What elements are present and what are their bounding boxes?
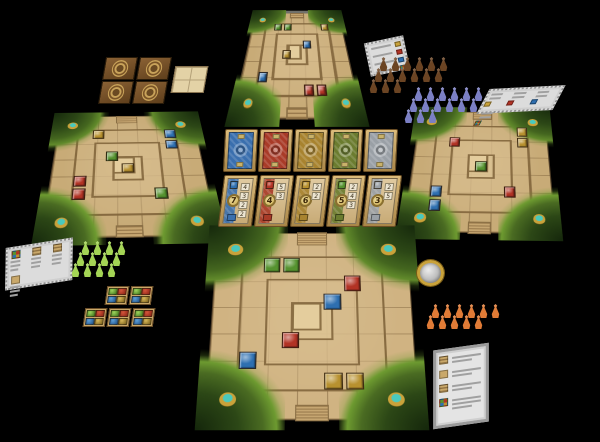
gem-tile-blue[interactable]	[429, 186, 442, 197]
gem-tile-red[interactable]	[73, 176, 87, 187]
temple-emblem-tile[interactable]	[98, 81, 134, 104]
gem-tile-green[interactable]	[274, 24, 282, 31]
red-gem-icon	[95, 310, 105, 317]
red-gem-icon	[117, 288, 127, 295]
temple-emblem-icon	[373, 141, 389, 159]
gem-quad-tile[interactable]	[129, 286, 154, 305]
aid-column	[8, 274, 22, 300]
tabletop-scene: 743224536225243325	[0, 0, 600, 442]
gold-coin[interactable]	[417, 260, 444, 286]
teal-altar-icon	[380, 244, 396, 256]
tile-icon	[11, 275, 20, 285]
player-aid-card[interactable]	[433, 343, 488, 430]
board-face	[204, 233, 419, 420]
meeple-brown[interactable]	[390, 57, 401, 71]
value-card-tray: 5243	[326, 175, 366, 227]
meeple-group-purple[interactable]	[413, 87, 493, 127]
meeple-purple[interactable]	[413, 87, 424, 101]
temple-emblem-icon	[233, 141, 249, 159]
gem-tile-blue[interactable]	[324, 294, 341, 309]
temple-card-tray	[293, 129, 328, 172]
jungle-foliage	[224, 68, 283, 126]
temple-card-tray	[363, 129, 398, 172]
card-chip	[377, 134, 384, 139]
value-card-tray: 453	[254, 175, 294, 227]
meeple-purple[interactable]	[461, 87, 472, 101]
value-steps: 22	[311, 183, 322, 200]
gem-tile-red[interactable]	[504, 187, 516, 198]
stairway	[287, 107, 308, 120]
blue-gem-icon	[529, 99, 538, 104]
stairway	[467, 222, 491, 234]
step-value: 2	[384, 183, 394, 191]
step-value: 3	[275, 192, 285, 200]
red-gem-icon	[143, 310, 153, 317]
temple-card-tray	[328, 129, 363, 172]
tile-stack-icon	[439, 355, 448, 364]
card-chip	[307, 134, 314, 139]
meeple-orange[interactable]	[442, 304, 453, 318]
gem-tile-gold[interactable]	[282, 50, 291, 59]
card-chip	[376, 162, 383, 167]
player-board-top[interactable]	[231, 13, 363, 120]
gold-gem-icon	[140, 296, 150, 303]
board-face	[402, 111, 556, 234]
emblem-icon	[145, 60, 164, 77]
value-card-blue[interactable]: 74322	[222, 178, 254, 224]
step-value: 2	[237, 210, 247, 218]
aid-row	[439, 379, 483, 395]
value-steps: 25	[383, 183, 394, 200]
meeple-green[interactable]	[116, 241, 127, 255]
step-value: 2	[348, 183, 358, 191]
pyramid-apex	[292, 303, 322, 331]
teal-altar-icon	[387, 393, 405, 407]
tile-stack-icon	[32, 246, 41, 256]
gem-tile-green[interactable]	[284, 258, 301, 273]
value-steps: 53	[275, 183, 286, 200]
card-chip	[272, 134, 279, 139]
player-board-bottom[interactable]	[204, 233, 419, 420]
value-steps: 243	[346, 183, 358, 209]
card-chip	[341, 162, 348, 167]
gold-gem-icon	[142, 318, 152, 325]
meeple-green[interactable]	[92, 241, 103, 255]
temple-emblem-icon	[338, 141, 354, 159]
temple-mini-icon	[299, 214, 309, 221]
temple-mini-icon	[263, 214, 273, 221]
gem-icon-gold	[301, 181, 310, 189]
gem-tile-blue[interactable]	[428, 199, 442, 211]
step-value: 2	[311, 192, 321, 200]
gold-gem-icon	[116, 296, 126, 303]
meeple-orange[interactable]	[490, 304, 501, 318]
gem-tile-red[interactable]	[449, 138, 461, 147]
step-value: 3	[346, 201, 356, 209]
gem-tile-blue[interactable]	[165, 140, 178, 149]
gem-tile-blue[interactable]	[239, 352, 257, 369]
gem-icon-silver	[373, 181, 382, 189]
step-value: 5	[276, 183, 286, 191]
meeple-orange[interactable]	[466, 304, 477, 318]
teal-altar-icon	[533, 214, 546, 224]
temple-card-silver[interactable]	[367, 132, 394, 169]
gem-tile-green[interactable]	[263, 258, 280, 273]
temple-card-tray	[223, 129, 258, 172]
aid-column	[8, 248, 22, 274]
gold-gem-icon	[94, 318, 104, 325]
gem-tile-blue[interactable]	[303, 41, 312, 49]
aid-column	[50, 242, 64, 268]
step-value: 2	[238, 201, 248, 209]
gem-tile-red[interactable]	[316, 85, 327, 96]
temple-card-blue[interactable]	[227, 132, 254, 169]
gem-tile-red[interactable]	[71, 189, 86, 201]
teal-altar-icon	[527, 119, 538, 126]
value-card-green[interactable]: 5243	[330, 178, 362, 224]
value-card-tray: 622	[290, 175, 330, 227]
meeple-brown[interactable]	[378, 57, 389, 71]
gem-tile-red[interactable]	[304, 85, 315, 96]
card-chip	[271, 162, 278, 167]
value-card-red[interactable]: 453	[258, 178, 290, 224]
card-chip	[237, 134, 244, 139]
value-card-gold[interactable]: 622	[294, 178, 326, 224]
gem-quad-tile[interactable]	[107, 308, 132, 327]
meeple-green[interactable]	[104, 241, 115, 255]
meeple-orange[interactable]	[430, 304, 441, 318]
meeple-group-orange[interactable]	[430, 304, 510, 344]
player-board-right[interactable]	[402, 111, 556, 234]
emblem-icon	[141, 84, 160, 101]
player-board-left[interactable]	[40, 115, 218, 239]
stairway	[116, 225, 144, 238]
gem-tile-blue[interactable]	[257, 72, 268, 82]
jungle-foliage	[311, 68, 370, 126]
aid-text	[450, 379, 483, 394]
tile-icon	[439, 370, 448, 379]
meeple-group-green[interactable]	[80, 241, 160, 281]
quad-gems-icon	[439, 398, 448, 407]
temple-emblem-tile[interactable]	[132, 81, 168, 104]
aid-text	[450, 393, 483, 412]
meeple-purple[interactable]	[473, 87, 484, 101]
value-card-row: 743224536225243325	[218, 175, 402, 227]
gem-quad-tile[interactable]	[131, 308, 156, 327]
temple-card-gold[interactable]	[297, 132, 324, 169]
gem-icon-green	[337, 181, 346, 189]
meeple-purple[interactable]	[437, 87, 448, 101]
gem-tile-red[interactable]	[344, 276, 361, 291]
aid-row	[439, 351, 483, 367]
aid-column	[529, 89, 553, 105]
meeple-brown[interactable]	[414, 57, 425, 71]
meeple-orange[interactable]	[478, 304, 489, 318]
card-chip	[342, 134, 349, 139]
gem-tile-gold[interactable]	[121, 163, 134, 173]
emblem-icon	[111, 60, 130, 77]
meeple-purple[interactable]	[425, 87, 436, 101]
temple-mini-icon	[335, 214, 345, 221]
temple-mini-icon	[227, 214, 237, 221]
temple-emblem-icon	[268, 141, 284, 159]
step-value: 4	[347, 192, 357, 200]
gem-icon-blue	[229, 181, 238, 189]
value-card-tray: 325	[362, 175, 402, 227]
meeple-orange[interactable]	[454, 304, 465, 318]
temple-card-row	[223, 129, 398, 172]
red-gem-icon	[119, 310, 129, 317]
stairway	[297, 232, 327, 245]
meeple-brown[interactable]	[438, 57, 449, 71]
tile-stack-icon	[53, 243, 62, 253]
red-gem-icon	[141, 288, 151, 295]
gem-tile-gold[interactable]	[346, 372, 364, 389]
temple-emblem-tile[interactable]	[102, 57, 138, 80]
red-gem-icon	[396, 48, 403, 54]
meeple-brown[interactable]	[402, 57, 413, 71]
gem-tile-green[interactable]	[154, 188, 169, 200]
teal-altar-icon	[175, 121, 187, 128]
board-face	[40, 115, 218, 239]
meeple-green[interactable]	[80, 241, 91, 255]
value-steps: 4322	[237, 183, 250, 218]
blank-grid-tile[interactable]	[171, 66, 209, 93]
gem-icon-red	[265, 181, 274, 189]
gem-tile-green[interactable]	[284, 24, 292, 31]
teal-altar-icon	[327, 18, 335, 23]
temple-card-green[interactable]	[332, 132, 359, 169]
meeple-brown[interactable]	[426, 57, 437, 71]
board-face	[231, 13, 363, 120]
player-aid-card[interactable]	[5, 237, 73, 290]
gem-tile-red[interactable]	[282, 332, 300, 348]
step-value: 3	[239, 192, 249, 200]
gem-cluster-icon	[439, 384, 448, 393]
step-value: 2	[312, 183, 322, 191]
gem-tile-green[interactable]	[475, 161, 487, 171]
value-card-silver[interactable]: 325	[366, 178, 398, 224]
gem-quad-tile[interactable]	[83, 308, 108, 327]
aid-text	[450, 365, 483, 380]
gem-tile-gold[interactable]	[320, 24, 328, 31]
gem-tile-gold[interactable]	[325, 372, 343, 389]
temple-mini-icon	[371, 214, 381, 221]
meeple-purple[interactable]	[449, 87, 460, 101]
quad-gems-icon	[11, 250, 20, 260]
temple-emblem-icon	[303, 141, 319, 159]
gold-gem-icon	[118, 318, 128, 325]
aid-row	[439, 365, 483, 381]
gem-tile-gold[interactable]	[517, 138, 529, 148]
stairway	[295, 405, 329, 422]
value-card-tray: 74322	[218, 175, 258, 227]
stairway	[116, 116, 137, 124]
gem-tile-gold[interactable]	[516, 127, 527, 136]
red-gem-icon	[506, 100, 515, 105]
aid-column	[29, 245, 43, 271]
emblem-icon	[107, 84, 126, 101]
gem-tile-gold[interactable]	[92, 130, 104, 139]
gold-gem-icon	[394, 40, 401, 46]
aid-text	[450, 351, 483, 366]
gem-tile-green[interactable]	[106, 151, 119, 161]
stairway	[290, 13, 303, 18]
step-value: 5	[383, 192, 393, 200]
card-chip	[236, 162, 243, 167]
temple-card-red[interactable]	[262, 132, 289, 169]
aid-column	[506, 90, 530, 106]
gem-quad-tile[interactable]	[105, 286, 130, 305]
aid-row	[439, 393, 483, 413]
card-chip	[306, 162, 313, 167]
gem-tile-blue[interactable]	[164, 129, 177, 138]
temple-card-tray	[258, 129, 293, 172]
step-value: 4	[240, 183, 250, 191]
temple-emblem-tile[interactable]	[136, 57, 172, 80]
